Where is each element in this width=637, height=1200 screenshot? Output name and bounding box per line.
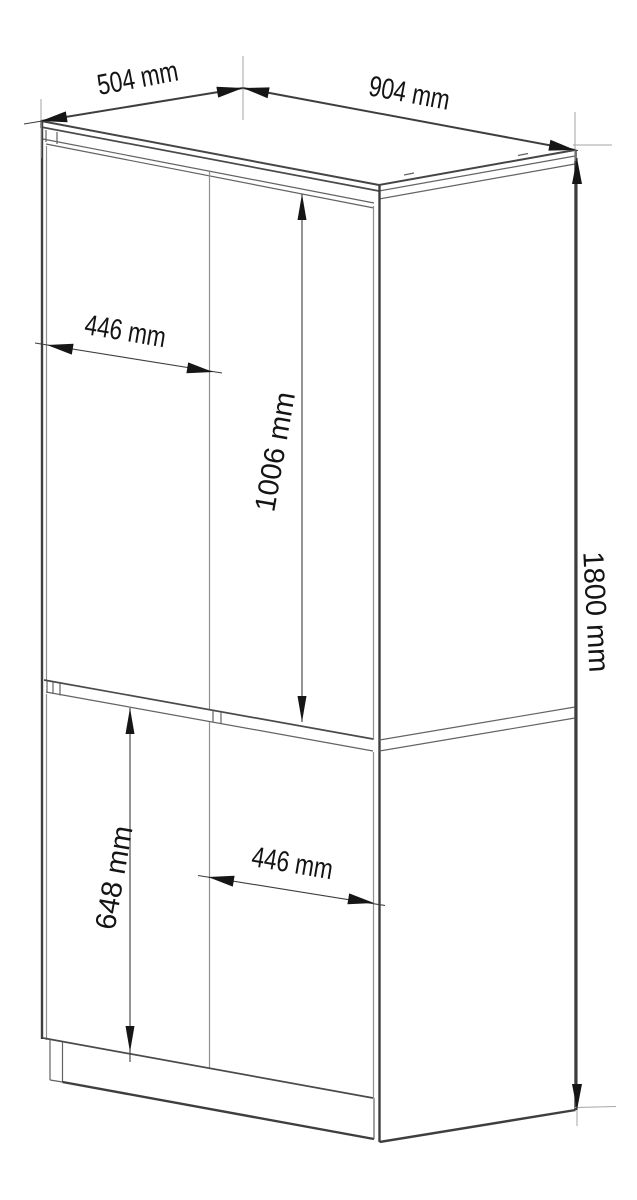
furniture-dimension-diagram: 504 mm 904 mm 1800 mm 1006 mm 648 mm 446… — [0, 0, 637, 1200]
technical-drawing-page: 504 mm 904 mm 1800 mm 1006 mm 648 mm 446… — [0, 0, 637, 1200]
dimension-label-overall-height: 1800 mm — [576, 551, 614, 673]
